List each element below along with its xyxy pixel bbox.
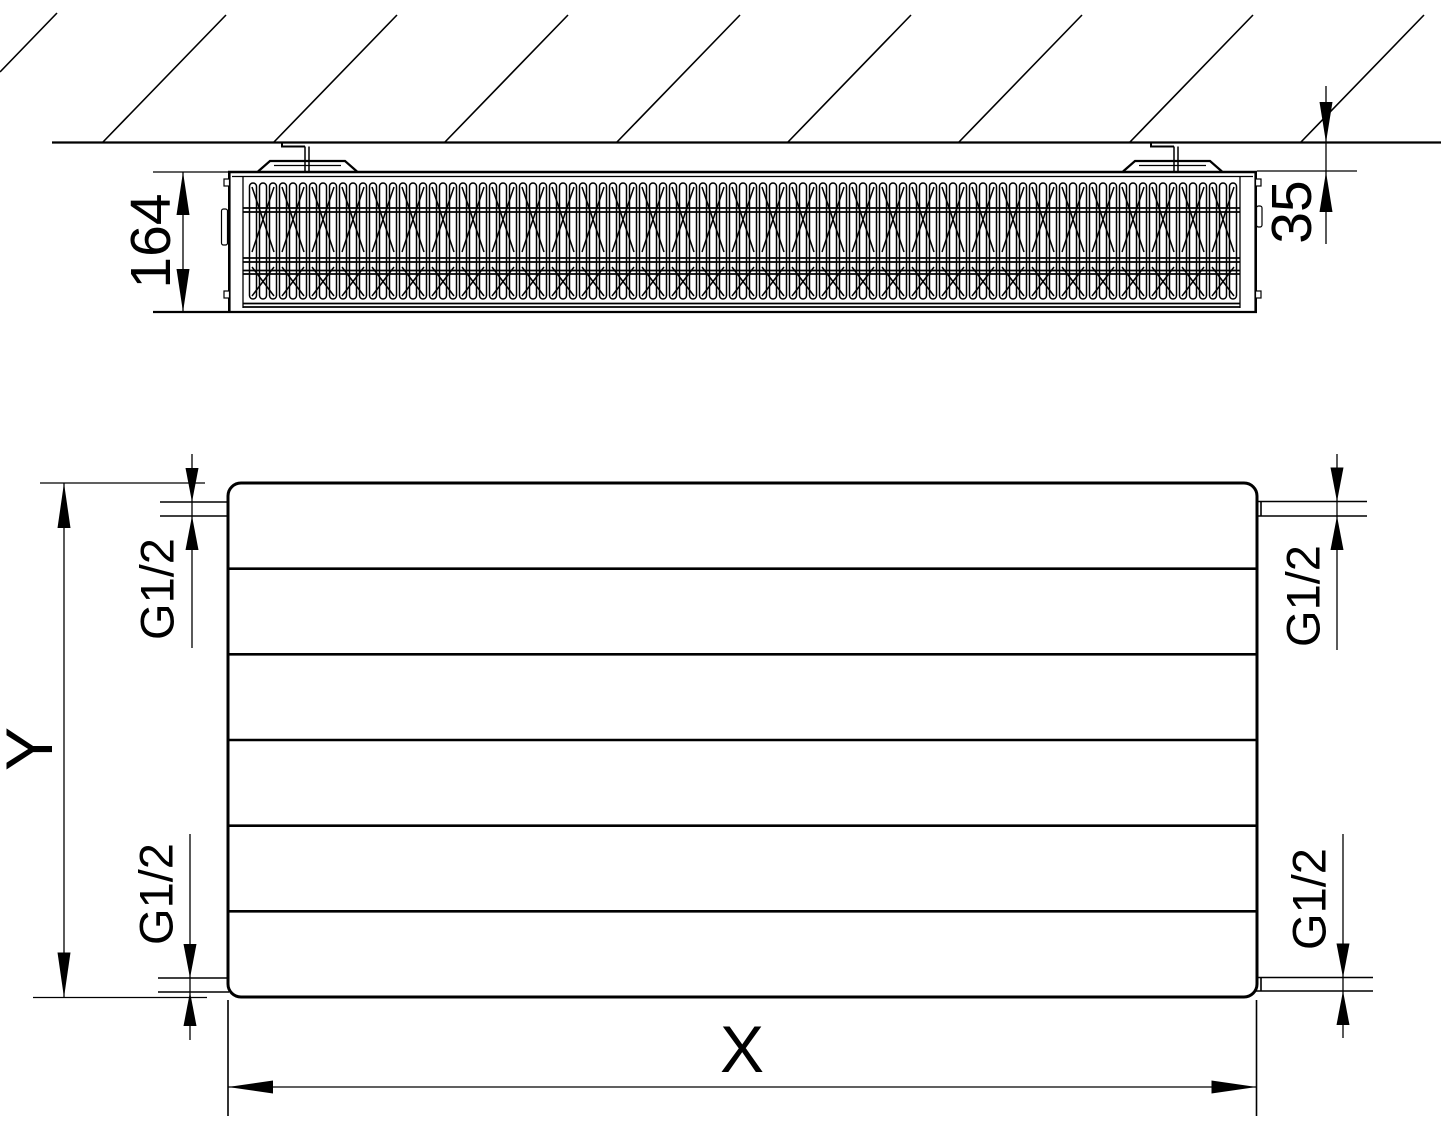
thread-label-bottom-right: G1/2	[1283, 848, 1336, 950]
thread-label-top-left: G1/2	[131, 538, 184, 640]
arrow-down-icon	[58, 953, 71, 998]
arrow-up-icon	[186, 516, 199, 550]
radiator-top-view	[153, 172, 1262, 312]
arrow-down-icon	[1337, 944, 1350, 978]
connection-stub-top-left	[160, 502, 229, 516]
arrow-right-icon	[1212, 1081, 1257, 1094]
dimension-x: X	[228, 1000, 1257, 1116]
arrow-down-icon	[184, 944, 197, 978]
side-plug-left	[222, 209, 228, 245]
dimension-g12-top-right: G1/2	[1277, 454, 1344, 650]
dimension-164: 164	[119, 172, 190, 312]
side-screw-left-top	[224, 179, 230, 186]
thread-label-top-right: G1/2	[1277, 545, 1330, 647]
wall-hatching	[0, 13, 1424, 142]
mounting-bracket-left	[258, 142, 357, 172]
arrow-up-icon	[58, 483, 71, 528]
width-label: X	[720, 1012, 764, 1086]
arrow-up-icon	[1331, 516, 1344, 550]
dimension-g12-bottom-left: G1/2	[130, 834, 197, 1040]
thread-label-bottom-left: G1/2	[130, 843, 183, 945]
front-view: Y X G1/2 G1/2 G1/2	[0, 454, 1373, 1116]
arrow-down-icon	[186, 468, 199, 502]
radiator-technical-drawing: 164 35	[0, 0, 1441, 1125]
height-label: Y	[0, 727, 66, 771]
connection-stub-bottom-right	[1256, 978, 1373, 992]
top-view: 164 35	[0, 13, 1441, 312]
dimension-35: 35	[1257, 86, 1357, 244]
connection-stub-top-right	[1256, 502, 1367, 517]
wall-distance-label: 35	[1260, 180, 1324, 243]
side-screw-left-bottom	[224, 291, 230, 298]
depth-label: 164	[119, 193, 183, 288]
connection-stub-bottom-left	[158, 978, 229, 992]
side-screw-right-bottom	[1256, 291, 1262, 298]
dimension-g12-bottom-right: G1/2	[1283, 834, 1350, 1038]
convector-fins	[248, 182, 1238, 300]
arrow-down-icon	[1331, 468, 1344, 502]
drawing-canvas: 164 35	[0, 0, 1441, 1125]
arrow-left-icon	[228, 1081, 273, 1094]
mounting-bracket-right	[1123, 142, 1222, 172]
arrow-up-icon	[1337, 991, 1350, 1025]
arrow-down-icon	[1320, 102, 1333, 143]
